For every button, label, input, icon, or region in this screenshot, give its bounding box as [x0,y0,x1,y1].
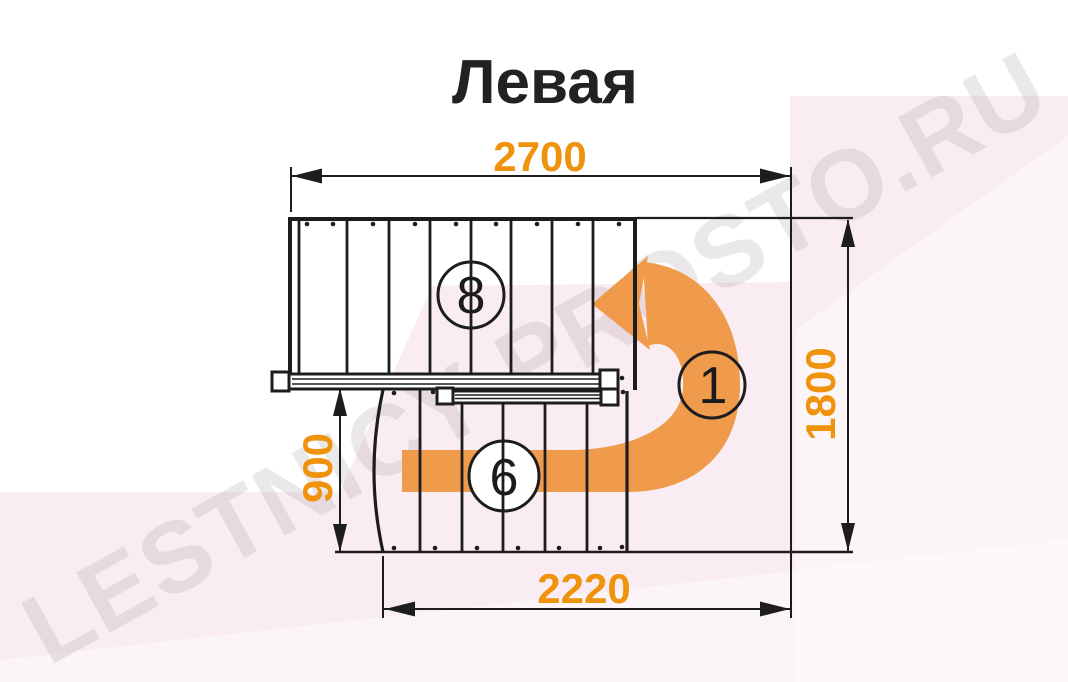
upper-flight-screw-dots [305,222,622,227]
page-title: Левая [452,52,638,114]
dimension-left-flight-width: 900 [297,433,339,503]
entry-beam-left-post [437,388,453,404]
landing-beam-right-post [600,370,618,390]
dimension-bottom-width: 2220 [537,568,630,610]
staircase-plan-page: LESTNICY-PROSTO.RU [0,0,1068,682]
dimension-right-height: 1800 [800,347,842,440]
landing-beam-left-post [272,372,289,391]
lower-flight-step-count: 6 [490,452,519,504]
dimension-top-width: 2700 [493,136,586,178]
upper-flight-step-count: 8 [457,270,486,322]
first-step-number: 1 [699,360,728,412]
entry-beam-right-post [601,389,618,405]
entry-beam [437,388,618,405]
